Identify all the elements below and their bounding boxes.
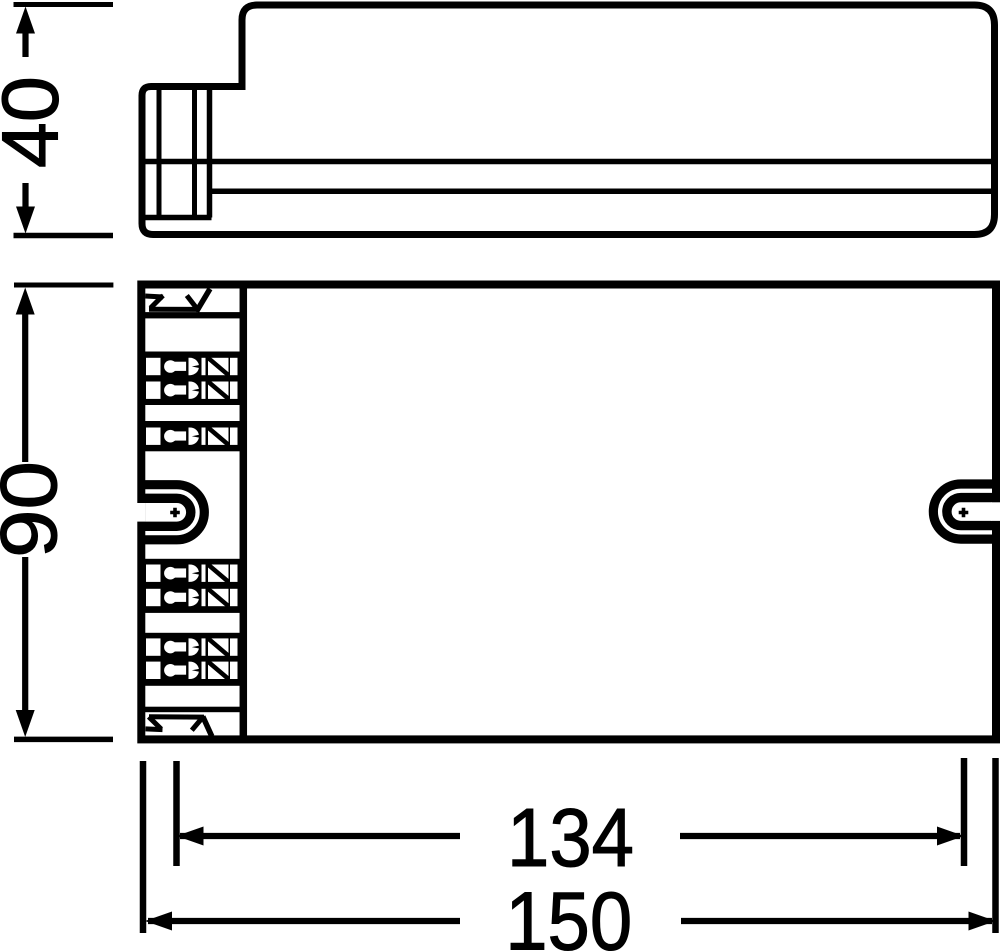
svg-text:40: 40 bbox=[0, 76, 75, 168]
svg-text:150: 150 bbox=[505, 875, 632, 952]
svg-text:134: 134 bbox=[507, 791, 634, 884]
svg-text:90: 90 bbox=[0, 461, 73, 558]
